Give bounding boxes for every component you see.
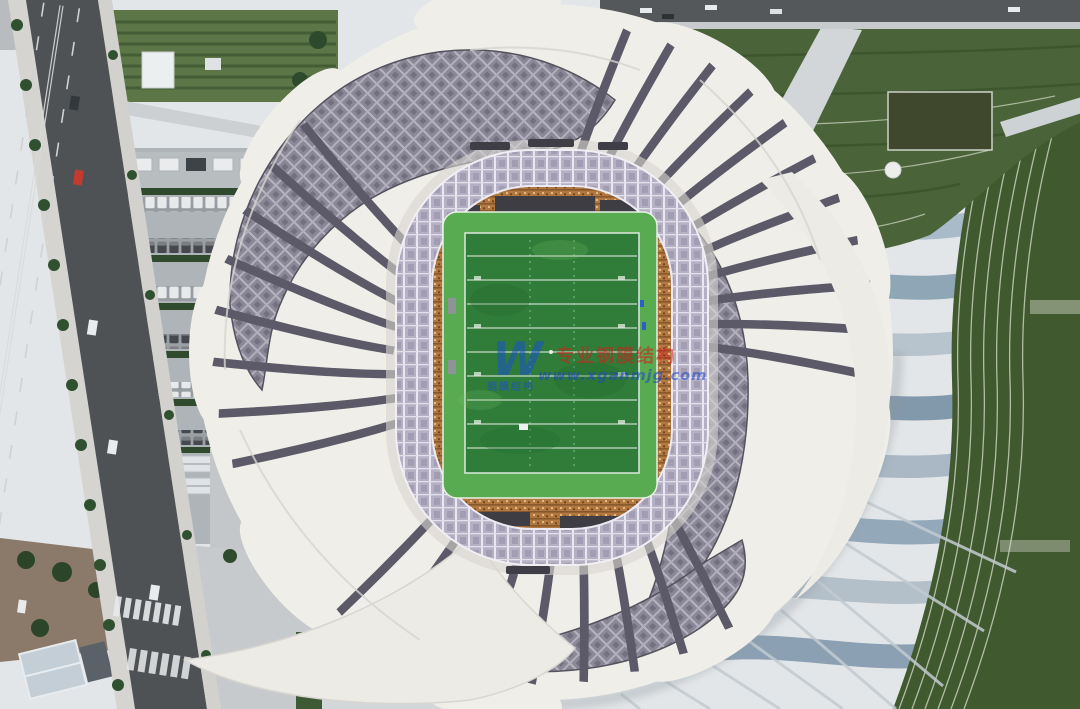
football-field	[443, 212, 657, 498]
small-building	[142, 52, 174, 88]
aerial-scene	[0, 0, 1080, 709]
aerial-photo: W 钢膜结构 专业钢膜结构 www.xganmjg.com	[0, 0, 1080, 709]
stadium-bowl	[392, 139, 712, 574]
white-dome	[885, 162, 901, 178]
